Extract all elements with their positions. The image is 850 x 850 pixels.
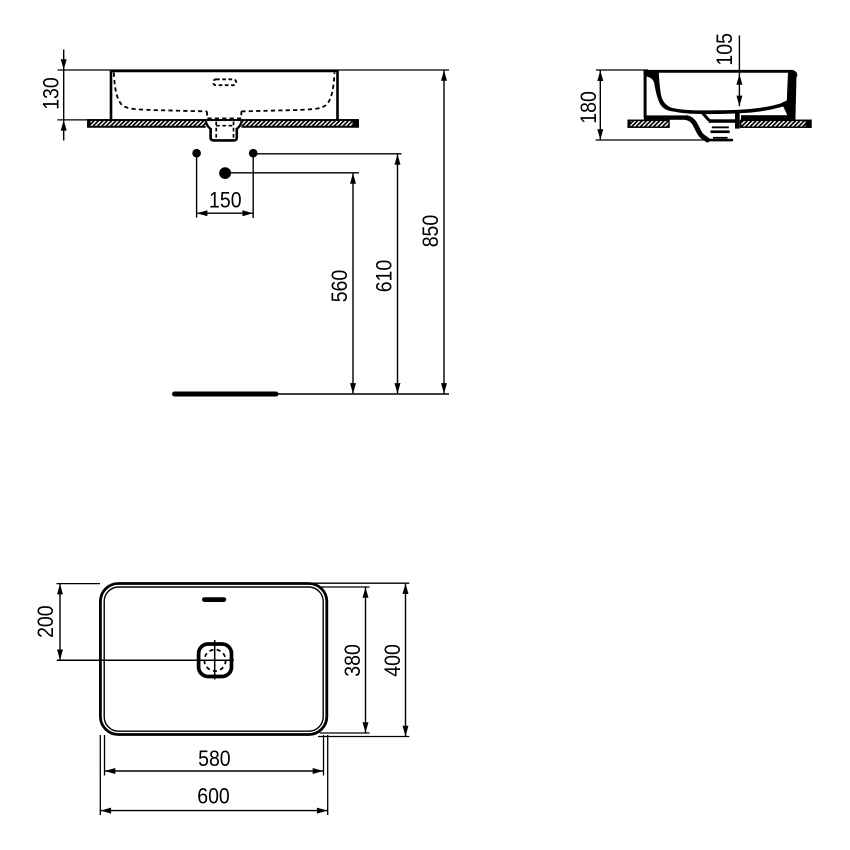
svg-text:560: 560 [327,270,352,303]
svg-text:580: 580 [198,746,231,771]
svg-text:400: 400 [380,644,405,677]
svg-text:130: 130 [39,77,64,110]
svg-text:380: 380 [340,644,365,677]
svg-text:150: 150 [209,188,242,213]
svg-text:610: 610 [371,260,396,293]
svg-text:850: 850 [418,215,443,248]
svg-text:105: 105 [712,33,737,66]
svg-text:600: 600 [197,784,230,809]
svg-text:200: 200 [33,605,58,638]
svg-text:180: 180 [576,91,601,124]
